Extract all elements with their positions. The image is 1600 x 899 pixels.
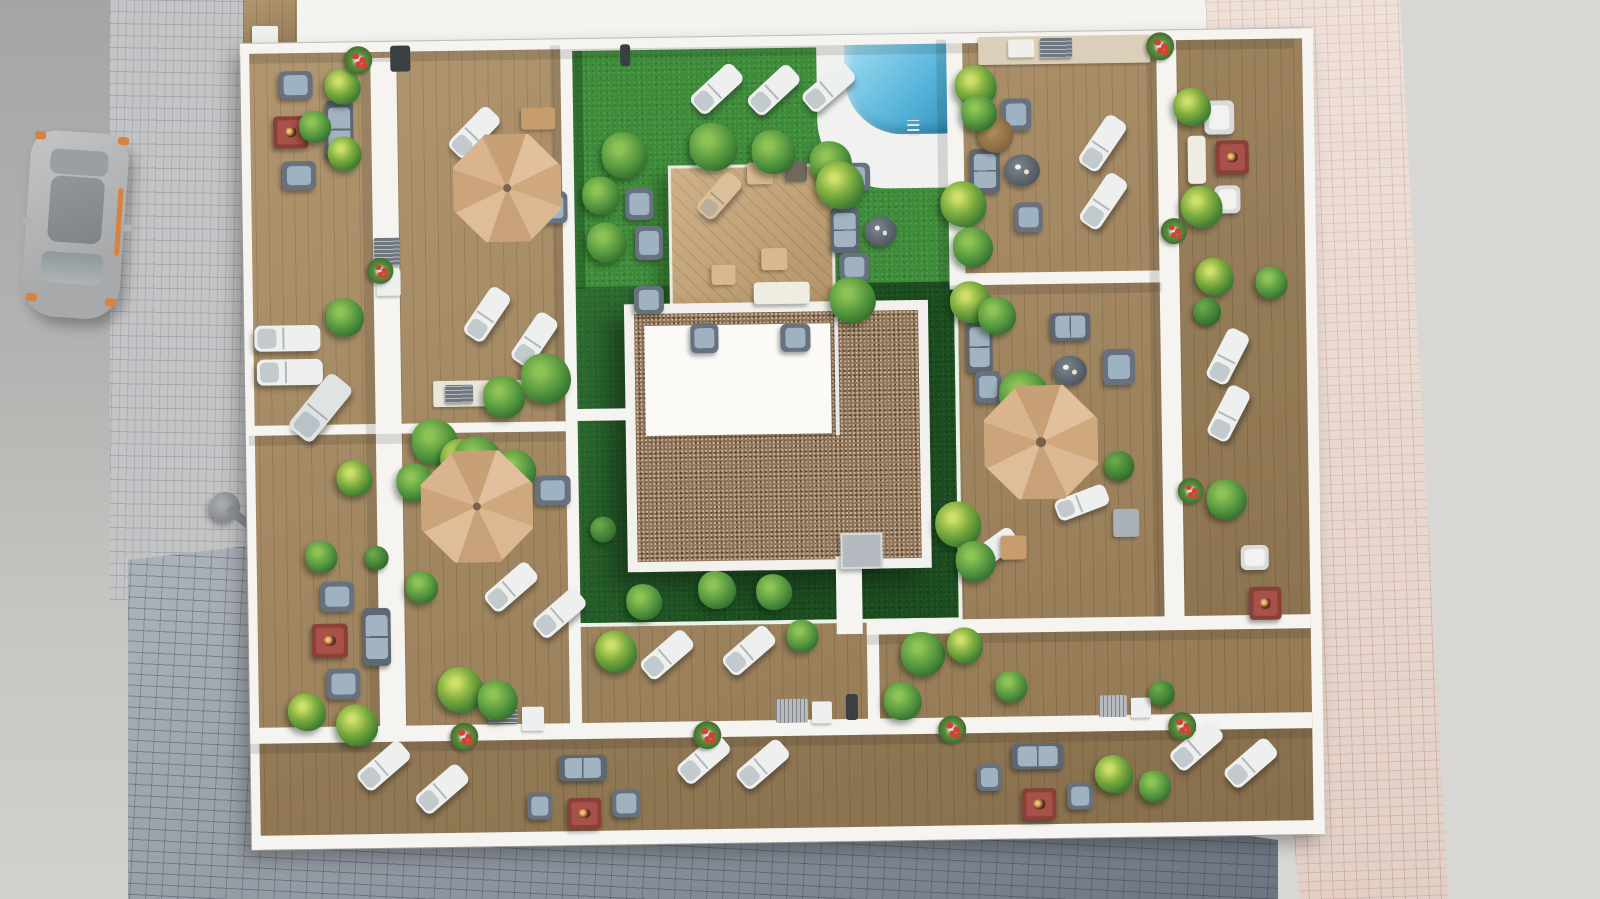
sun-lounger (355, 739, 413, 794)
patio-chair (975, 371, 1001, 403)
car-light (117, 137, 129, 146)
utility-box (1008, 39, 1034, 57)
flower-bloom (947, 723, 953, 729)
fire-pit-table (1249, 587, 1281, 620)
parasol-pole-cap (1036, 438, 1045, 447)
flower-bloom (459, 730, 465, 736)
bush-plant (961, 95, 998, 132)
bush-plant (582, 176, 621, 215)
street-lamp (210, 492, 240, 522)
chair-cushion (638, 290, 659, 309)
chair-cushion (332, 673, 355, 694)
car-rear-window (50, 148, 109, 178)
chair-cushion (1209, 106, 1230, 129)
table-set-detail (1015, 164, 1022, 170)
sun-lounger (638, 627, 696, 682)
palm-plant (1095, 755, 1134, 794)
fire-glow (579, 809, 590, 819)
lounger-headrest (1081, 204, 1106, 229)
outdoor-sofa (362, 608, 391, 666)
lounger-headrest (465, 317, 490, 341)
flower-bloom (383, 273, 389, 279)
flower-bloom (461, 738, 467, 744)
patio-chair (625, 188, 653, 220)
parasol-pole-cap (472, 502, 481, 511)
table-set-detail (882, 231, 887, 236)
roof-skylight (840, 533, 883, 570)
side-table (711, 265, 735, 285)
round-table (865, 216, 897, 246)
flower-bloom (1154, 40, 1160, 46)
car-windshield (40, 250, 103, 286)
outdoor-sofa (559, 755, 607, 782)
flower-planter (344, 46, 372, 74)
sun-lounger (800, 60, 858, 115)
sun-lounger (530, 586, 588, 641)
fire-pit-table (567, 798, 601, 830)
flower-bloom (1188, 492, 1194, 498)
fire-pit-table (1022, 788, 1056, 821)
palm-plant (1195, 257, 1234, 296)
side-table (761, 248, 787, 270)
sun-lounger (1076, 112, 1128, 173)
lounger-headrest (1080, 146, 1105, 171)
outdoor-sofa (1011, 743, 1063, 770)
bush-plant (995, 670, 1027, 702)
fire-pit-top (1220, 144, 1245, 170)
aerial-rooftop-render (0, 0, 1600, 899)
bush-plant (587, 222, 628, 263)
patio-chair (326, 668, 360, 700)
bush-plant (787, 619, 819, 651)
patio-chair (320, 581, 354, 612)
lounger-headrest (1208, 360, 1232, 383)
car-light (26, 293, 38, 302)
chair-cushion (617, 794, 636, 813)
round-table (1053, 355, 1087, 386)
bush-plant (1207, 479, 1248, 520)
bush-plant (601, 132, 648, 179)
sun-lounger (745, 62, 802, 118)
outdoor-sofa (1050, 312, 1090, 341)
bush-plant (1255, 266, 1287, 298)
topiary-ball (364, 546, 388, 570)
patio-chair (1103, 349, 1136, 385)
bench (754, 282, 810, 305)
lounger-seam (282, 327, 284, 349)
fire-glow (1260, 598, 1271, 608)
sun-lounger (257, 359, 323, 386)
car-light (104, 298, 116, 307)
outdoor-sofa (830, 207, 859, 253)
flower-bloom (355, 62, 361, 68)
flower-bloom (949, 731, 955, 737)
fire-pit-table (312, 623, 349, 658)
fire-glow (324, 635, 336, 646)
sofa-cushions (1018, 746, 1058, 766)
table-set-detail (1072, 370, 1077, 375)
flower-bloom (1185, 729, 1191, 735)
ac-unit (776, 699, 808, 723)
flower-planter (1161, 218, 1187, 244)
lounger-headrest (291, 409, 322, 440)
light-bollard (390, 45, 410, 71)
bush-plant (483, 376, 526, 419)
bush-plant (955, 541, 996, 582)
sun-lounger (482, 560, 540, 615)
fire-glow (1227, 152, 1238, 162)
patio-chair (282, 161, 316, 191)
sun-lounger (695, 170, 744, 222)
bush-plant (830, 277, 877, 324)
fire-pit-top (571, 802, 597, 826)
chair-cushion (325, 586, 348, 607)
flower-planter (1146, 32, 1174, 60)
bush-plant (305, 541, 337, 573)
table-set-detail (874, 226, 880, 231)
flower-bloom (1185, 485, 1191, 491)
bush-plant (689, 123, 738, 172)
patio-chair (534, 475, 570, 506)
lounger-headrest (1209, 417, 1233, 440)
palm-plant (336, 460, 373, 497)
flower-bloom (704, 736, 710, 742)
bush-plant (751, 130, 796, 175)
chair-cushion (639, 231, 658, 254)
flower-bloom (1169, 225, 1175, 231)
bush-plant (953, 227, 994, 268)
table-set-detail (1024, 170, 1029, 175)
patio-chair (612, 789, 640, 817)
topiary-ball (590, 516, 616, 542)
chair-cushion (1019, 207, 1038, 228)
bush-plant (756, 574, 793, 611)
car-roof (47, 176, 105, 245)
flower-bloom (955, 732, 961, 738)
sun-lounger (413, 762, 471, 817)
flower-bloom (1171, 232, 1177, 238)
lounger-seam (1075, 495, 1083, 513)
car-mirror (124, 224, 134, 232)
fire-glow (1034, 799, 1046, 809)
parasol-pole-cap (503, 184, 512, 193)
parked-car (19, 123, 135, 328)
patio-chair (1241, 545, 1269, 570)
patio-chair (690, 323, 718, 353)
flower-planter (938, 715, 966, 743)
sun-lounger (1205, 383, 1252, 444)
lounger-seam (284, 361, 286, 383)
flower-bloom (702, 728, 708, 734)
flower-bloom (1177, 719, 1183, 725)
flower-bloom (375, 265, 381, 271)
table-set-detail (1063, 365, 1069, 370)
chair-cushion (1245, 549, 1264, 566)
fire-pit-top (1026, 792, 1052, 817)
sofa-cushions (564, 758, 601, 778)
flower-bloom (361, 63, 367, 69)
bush-plant (698, 571, 737, 610)
bush-plant (521, 353, 572, 404)
patio-chair (1067, 782, 1093, 809)
bush-plant (299, 111, 331, 143)
utility-box (812, 701, 832, 723)
sofa-cushions (366, 615, 388, 659)
sun-lounger (254, 325, 320, 352)
lounger-headrest (1056, 498, 1077, 519)
flower-bloom (1179, 727, 1185, 733)
palm-plant (437, 666, 484, 713)
palm-plant (336, 704, 379, 747)
chair-cushion (531, 797, 548, 816)
side-table (521, 107, 555, 130)
light-bollard (620, 44, 630, 66)
chair-cushion (844, 257, 865, 276)
patio-chair (1014, 202, 1042, 232)
bush-plant (326, 298, 365, 337)
palm-plant (288, 693, 327, 732)
furniture-layer (240, 28, 1324, 850)
fire-pit-top (316, 628, 344, 654)
chair-cushion (1071, 787, 1089, 806)
flower-bloom (467, 739, 473, 745)
patio-chair (527, 792, 552, 819)
utility-box (1131, 698, 1151, 718)
sun-lounger (1204, 326, 1251, 387)
bush-plant (626, 584, 663, 621)
fire-pit-table (1216, 140, 1250, 174)
bush-plant (1139, 770, 1171, 802)
chair-cushion (695, 328, 714, 349)
flower-bloom (1163, 49, 1169, 55)
sun-lounger (1077, 170, 1129, 231)
patio-chair (634, 286, 664, 314)
palm-plant (595, 630, 638, 673)
round-table (1004, 154, 1040, 187)
bush-plant (477, 680, 518, 721)
lounger-headrest (257, 329, 277, 349)
bush-plant (406, 571, 438, 603)
palm-plant (947, 627, 984, 664)
topiary-ball (1149, 680, 1175, 706)
flower-planter (1178, 478, 1204, 504)
building-plot (240, 28, 1324, 850)
chair-cushion (540, 480, 565, 501)
sofa-cushions (834, 212, 856, 247)
sofa-cushions (969, 327, 989, 367)
chair-cushion (630, 193, 649, 215)
light-bollard (846, 694, 858, 720)
palm-plant (1180, 185, 1223, 228)
topiary-ball (1193, 297, 1221, 325)
car-mirror (22, 217, 32, 225)
flower-bloom (1177, 234, 1183, 240)
bush-plant (884, 682, 923, 721)
flower-bloom (710, 738, 716, 744)
sun-lounger (720, 623, 778, 678)
chair-cushion (287, 166, 310, 186)
flower-bloom (1193, 493, 1199, 499)
bbq-grill (1040, 38, 1072, 58)
patio-chair (977, 764, 1002, 791)
chair-cushion (284, 75, 307, 94)
car-light (35, 131, 47, 140)
sun-lounger (461, 284, 512, 344)
chair-cushion (785, 328, 806, 347)
ac-unit (1099, 695, 1127, 717)
fire-glow (285, 127, 297, 137)
chair-cushion (981, 768, 998, 787)
fire-pit-top (1253, 591, 1278, 616)
bbq-grill (445, 385, 473, 403)
bench (1187, 136, 1206, 184)
sun-lounger (1222, 736, 1280, 791)
topiary-ball (1104, 451, 1134, 481)
flower-bloom (353, 54, 359, 60)
flower-planter (450, 723, 478, 751)
flower-bloom (377, 272, 383, 278)
patio-chair (635, 226, 664, 260)
patio-chair (278, 71, 312, 100)
palm-plant (1173, 88, 1212, 127)
sun-lounger (734, 737, 792, 792)
flower-bloom (1157, 48, 1163, 54)
bush-plant (901, 632, 946, 677)
patio-chair (780, 324, 810, 352)
sofa-cushions (973, 154, 996, 188)
side-table (1113, 509, 1139, 537)
side-table (1000, 535, 1026, 559)
sun-lounger (688, 61, 745, 117)
chair-cushion (1108, 355, 1130, 380)
palm-plant (327, 136, 362, 171)
chair-cushion (979, 376, 997, 398)
bush-plant (978, 297, 1017, 336)
sofa-cushions (1055, 316, 1086, 338)
utility-box (522, 707, 544, 731)
lounger-headrest (259, 363, 279, 383)
